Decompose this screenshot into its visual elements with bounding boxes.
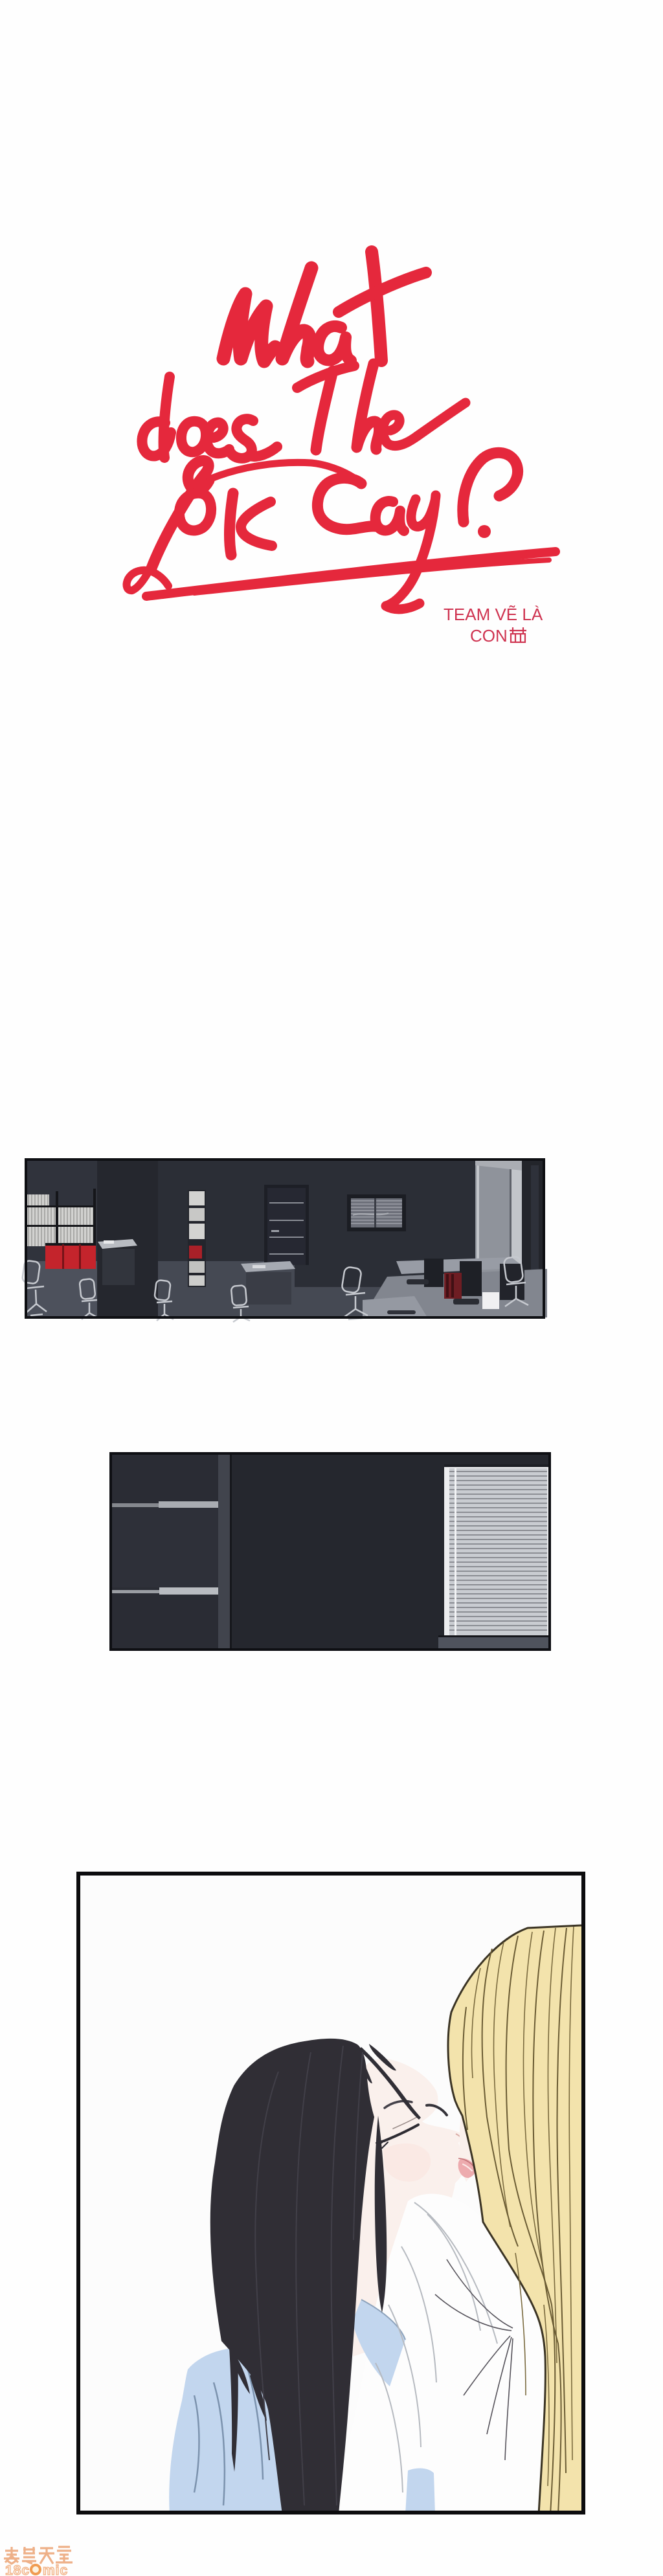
svg-text:mic: mic (43, 2563, 68, 2576)
svg-text:18c: 18c (5, 2563, 30, 2576)
svg-text:CON: CON (470, 626, 508, 645)
svg-text:TEAM VẼ LÀ: TEAM VẼ LÀ (444, 605, 543, 624)
